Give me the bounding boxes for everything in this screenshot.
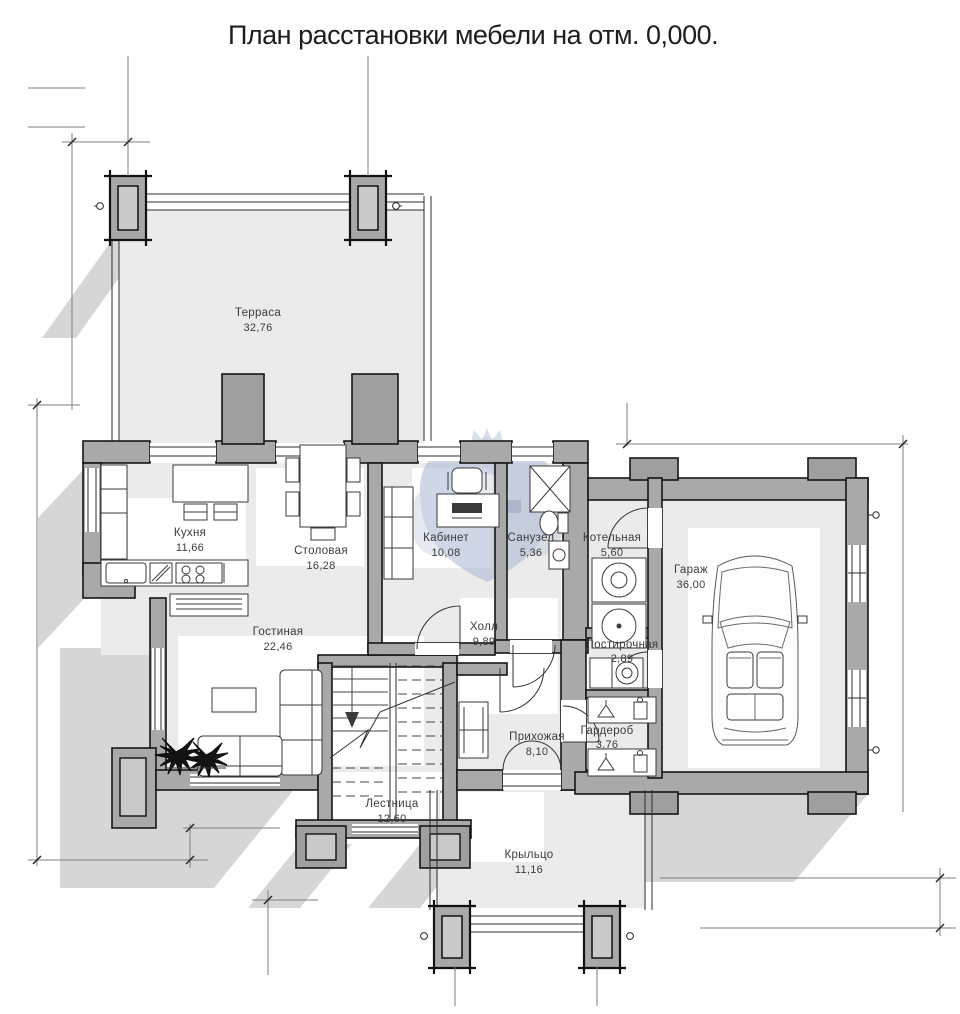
kitchen-sink: [106, 563, 146, 583]
svg-text:Крыльцо: Крыльцо: [504, 849, 553, 861]
svg-text:11,16: 11,16: [515, 864, 543, 876]
window-kitchen-west: [85, 468, 99, 532]
entry-cabinet: [459, 702, 488, 758]
window-garage-east-1: [848, 545, 866, 602]
window-north-bath: [512, 443, 553, 461]
coffee-table: [212, 688, 256, 712]
terrace-column-left: [94, 170, 152, 246]
svg-text:32,76: 32,76: [243, 322, 272, 334]
svg-text:9,89: 9,89: [473, 636, 496, 648]
kitchen-fridge-cabinets: [101, 465, 127, 559]
svg-text:Постирочная: Постирочная: [586, 639, 659, 651]
svg-text:Прихожая: Прихожая: [509, 731, 565, 743]
svg-text:Столовая: Столовая: [294, 545, 348, 557]
window-stair-south: [352, 824, 418, 834]
page-title: План расстановки мебели на отм. 0,000.: [228, 20, 718, 50]
svg-text:Холл: Холл: [470, 621, 498, 633]
svg-text:Гардероб: Гардероб: [581, 725, 634, 737]
svg-text:2,89: 2,89: [611, 653, 634, 665]
kitchen-cutting-board: [150, 563, 172, 583]
bath-sink: [549, 541, 569, 569]
svg-text:5,60: 5,60: [601, 547, 624, 559]
svg-text:Терраса: Терраса: [235, 307, 282, 319]
kitchen-stove: [176, 563, 224, 583]
porch-column-right: [578, 900, 633, 974]
svg-text:12,60: 12,60: [377, 813, 406, 825]
shower: [530, 466, 570, 512]
svg-text:11,66: 11,66: [176, 542, 204, 554]
svg-text:5,36: 5,36: [520, 547, 543, 559]
svg-text:8,10: 8,10: [526, 746, 549, 758]
svg-text:Гостиная: Гостиная: [253, 626, 304, 638]
car: [703, 556, 807, 745]
svg-text:Санузел: Санузел: [508, 532, 555, 544]
svg-text:16,28: 16,28: [306, 560, 335, 572]
svg-text:Кабинет: Кабинет: [423, 532, 469, 544]
porch-column-left: [421, 900, 476, 974]
window-north-kitchen: [150, 443, 216, 461]
wall-anchors: [868, 512, 879, 753]
window-garage-east-2: [848, 670, 866, 727]
study-sofa: [384, 487, 413, 579]
svg-text:22,46: 22,46: [263, 641, 292, 653]
svg-text:Кухня: Кухня: [174, 527, 206, 539]
window-north-study: [418, 443, 460, 461]
svg-text:Котельная: Котельная: [583, 532, 641, 544]
closet-strip-2: [588, 749, 656, 776]
svg-text:36,00: 36,00: [676, 579, 705, 591]
tv-stand: [170, 594, 248, 616]
floor-plan: План расстановки мебели на отм. 0,000.: [0, 0, 960, 1014]
svg-text:10,08: 10,08: [431, 547, 460, 559]
svg-text:Гараж: Гараж: [674, 564, 708, 576]
svg-text:Лестница: Лестница: [365, 798, 418, 810]
closet-strip-1: [588, 697, 656, 723]
svg-text:3,76: 3,76: [596, 739, 619, 751]
window-living-west: [152, 648, 164, 730]
